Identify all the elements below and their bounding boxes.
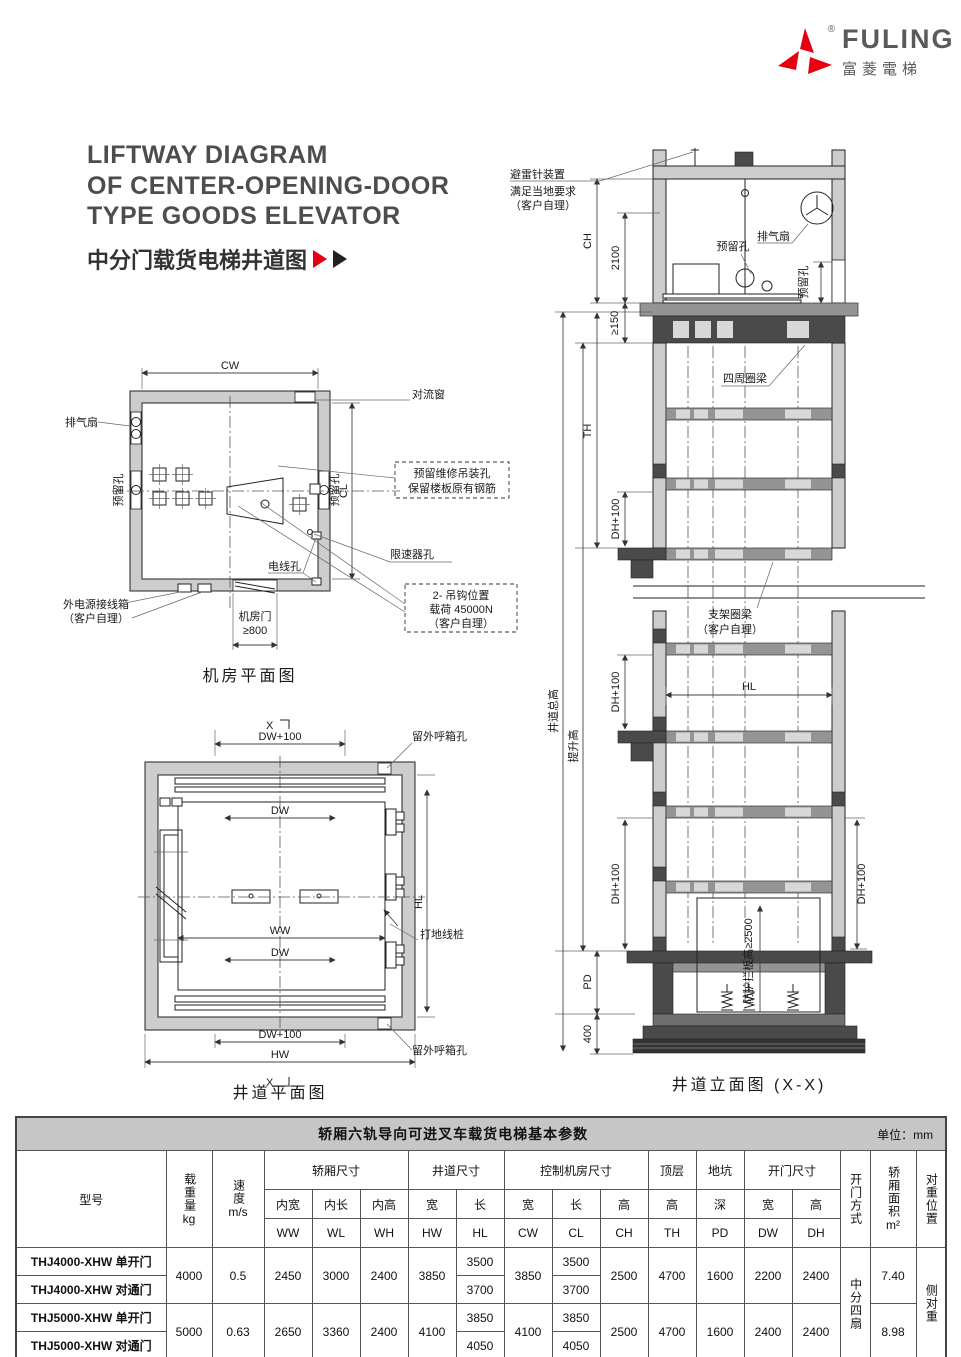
lightning-label3: （客户自理）	[510, 198, 576, 212]
reserved-hole-right-elev-label: 预留孔	[797, 266, 810, 299]
header-dh: DH	[792, 1219, 840, 1248]
header-car-group: 轿厢尺寸	[264, 1151, 408, 1190]
black-arrow-icon	[333, 250, 347, 268]
dim-hl-elev: HL	[742, 681, 756, 693]
page-title: LIFTWAY DIAGRAM OF CENTER-OPENING-DOOR T…	[87, 140, 449, 275]
dim-dw-bottom: DW	[271, 947, 290, 959]
dim-dw-top: DW	[271, 805, 290, 817]
spec-cell: 2400	[360, 1248, 408, 1304]
spec-cell: 5000	[166, 1304, 212, 1357]
dim-2100: 2100	[610, 246, 622, 270]
machine-room-plan-diagram: CW CL 排气扇 预留孔 预留孔 对流窗 预留维修吊装孔 保留楼板原有钢筋 限…	[60, 356, 520, 696]
dim-dh100-b: DH+100	[610, 672, 622, 713]
header-counterweight: 对重位置	[916, 1151, 946, 1248]
header-door-h: 高	[792, 1190, 840, 1219]
spec-cell: 2500	[600, 1304, 648, 1357]
header-door-w: 宽	[744, 1190, 792, 1219]
reserved-hole-left-label: 预留孔	[112, 474, 125, 507]
table-row: THJ4000-XHW 单开门 4000 0.5 2450 3000 2400 …	[16, 1248, 946, 1276]
spec-cell: 2450	[264, 1248, 312, 1304]
lightning-label2: 满足当地要求	[510, 184, 576, 198]
machine-room-door-dim: ≥800	[243, 625, 267, 637]
hook-note2: 载荷 45000N	[429, 603, 493, 616]
spec-cell: 4000	[166, 1248, 212, 1304]
model-cell: THJ4000-XHW 对通门	[16, 1276, 166, 1304]
hoist-hole-note1: 预留维修吊装孔	[414, 466, 491, 480]
total-height-label: 井道总高	[546, 689, 560, 733]
lightning-label1: 避雷针装置	[510, 167, 565, 181]
header-dw: DW	[744, 1219, 792, 1248]
title-en-line1: LIFTWAY DIAGRAM	[87, 140, 449, 171]
spec-cell: 4050	[456, 1332, 504, 1357]
header-top-group: 顶层	[648, 1151, 696, 1190]
shaft-plan-caption: 井道平面图	[232, 1084, 327, 1102]
elevation-structure	[618, 148, 925, 1053]
hook-note3: （客户自理）	[428, 616, 494, 630]
header-door-group: 开门尺寸	[744, 1151, 840, 1190]
dim-400: 400	[582, 1025, 594, 1043]
header-cl: CL	[552, 1219, 600, 1248]
spec-cell: 4100	[504, 1304, 552, 1357]
table-title: 轿厢六轨导向可进叉车载货电梯基本参数	[29, 1124, 877, 1144]
dim-hl: HL	[413, 895, 425, 909]
header-room-l: 长	[552, 1190, 600, 1219]
spec-table: 轿厢六轨导向可进叉车载货电梯基本参数 单位：mm 型号 载重量kg 速度m/s …	[15, 1116, 947, 1357]
header-wl: WL	[312, 1219, 360, 1248]
title-en-line2: OF CENTER-OPENING-DOOR	[87, 171, 449, 202]
power-box-label1: 外电源接线箱	[63, 597, 129, 611]
title-cn: 中分门载货电梯井道图	[87, 243, 307, 275]
ring-beam-label: 四周圈梁	[723, 371, 767, 385]
area-cell: 7.40	[870, 1248, 916, 1304]
brand-mark-icon: ®	[775, 26, 833, 86]
spec-cell: 3360	[312, 1304, 360, 1357]
brand-name: FULING	[842, 26, 955, 53]
header-hl: HL	[456, 1219, 504, 1248]
shaft-elevation-diagram: CH 2100 ≥150 TH DH+100 DH+100 DH+100 提升高…	[505, 146, 955, 1108]
hook-note1: 2- 吊钩位置	[433, 588, 490, 602]
dim-dh100-a: DH+100	[610, 499, 622, 540]
callbox-top-label: 留外呼箱孔	[412, 729, 467, 743]
callbox-bottom-label: 留外呼箱孔	[412, 1043, 467, 1057]
brand-name-cn: 富菱電梯	[842, 58, 955, 79]
spec-cell: 3850	[408, 1248, 456, 1304]
bracket-beam-label2: （客户自理）	[697, 622, 763, 636]
spec-cell: 4700	[648, 1304, 696, 1357]
dim-cw-label: CW	[221, 360, 240, 372]
cw-dimension: CW	[142, 360, 318, 389]
shaft-plan-diagram: X X	[90, 712, 490, 1104]
header-car-l: 内长	[312, 1190, 360, 1219]
model-cell: THJ5000-XHW 对通门	[16, 1332, 166, 1357]
spec-cell: 2500	[600, 1248, 648, 1304]
hoist-hole-note2: 保留楼板原有钢筋	[408, 481, 496, 495]
counterweight-cell: 侧对重	[916, 1248, 946, 1357]
spec-cell: 0.63	[212, 1304, 264, 1357]
area-cell: 8.98	[870, 1304, 916, 1357]
guard-height-label: 防护拦板高≥2500	[741, 918, 755, 1004]
spec-cell: 3700	[456, 1276, 504, 1304]
header-pd: PD	[696, 1219, 744, 1248]
header-pit-d: 深	[696, 1190, 744, 1219]
spec-cell: 2650	[264, 1304, 312, 1357]
model-cell: THJ4000-XHW 单开门	[16, 1248, 166, 1276]
spec-cell: 3850	[552, 1304, 600, 1332]
machine-room-door-label: 机房门	[239, 609, 272, 623]
model-cell: THJ5000-XHW 单开门	[16, 1304, 166, 1332]
spec-cell: 3500	[456, 1248, 504, 1276]
dim-pd: PD	[582, 974, 594, 989]
spec-cell: 2400	[360, 1304, 408, 1357]
header-shaft-group: 井道尺寸	[408, 1151, 504, 1190]
spec-cell: 3850	[504, 1248, 552, 1304]
spec-cell: 4050	[552, 1332, 600, 1357]
dim-ge150: ≥150	[609, 311, 621, 335]
reserved-hole-right-label: 预留孔	[328, 474, 341, 507]
elevation-caption: 井道立面图 (X-X)	[672, 1076, 827, 1094]
spec-cell: 2400	[744, 1304, 792, 1357]
spec-cell: 0.5	[212, 1248, 264, 1304]
bracket-beam-label1: 支架圈梁	[708, 607, 752, 621]
brand-logo: ® FULING 富菱電梯	[775, 26, 955, 86]
header-wh: WH	[360, 1219, 408, 1248]
spec-cell: 3850	[456, 1304, 504, 1332]
dim-th: TH	[582, 424, 594, 439]
spec-cell: 1600	[696, 1248, 744, 1304]
header-ch: CH	[600, 1219, 648, 1248]
power-box-label2: （客户自理）	[63, 611, 129, 625]
spec-cell: 3500	[552, 1248, 600, 1276]
spec-cell: 3700	[552, 1276, 600, 1304]
travel-height-label: 提升高	[566, 730, 580, 763]
spec-cell: 4100	[408, 1304, 456, 1357]
spec-cell: 2400	[792, 1248, 840, 1304]
header-load: 载重量kg	[166, 1151, 212, 1248]
dim-hw: HW	[271, 1049, 290, 1061]
reserved-hole-elev-label: 预留孔	[717, 240, 750, 253]
header-pit-group: 地坑	[696, 1151, 744, 1190]
convection-window-label: 对流窗	[412, 387, 445, 401]
spec-cell: 3000	[312, 1248, 360, 1304]
header-ww: WW	[264, 1219, 312, 1248]
header-shaft-l: 长	[456, 1190, 504, 1219]
header-cw: CW	[504, 1219, 552, 1248]
dim-ww: WW	[270, 925, 291, 937]
exhaust-fan-label: 排气扇	[65, 415, 98, 429]
door-type-cell: 中分四扇	[840, 1248, 870, 1357]
dim-ch: CH	[582, 233, 594, 249]
header-hw: HW	[408, 1219, 456, 1248]
spec-cell: 2200	[744, 1248, 792, 1304]
spec-cell: 1600	[696, 1304, 744, 1357]
title-en-line3: TYPE GOODS ELEVATOR	[87, 201, 449, 232]
header-car-h: 内高	[360, 1190, 408, 1219]
registered-mark: ®	[828, 24, 835, 35]
dim-dw100-bottom: DW+100	[258, 1029, 301, 1041]
spec-cell: 4700	[648, 1248, 696, 1304]
header-th: TH	[648, 1219, 696, 1248]
header-speed: 速度m/s	[212, 1151, 264, 1248]
header-shaft-w: 宽	[408, 1190, 456, 1219]
dim-dw100-top: DW+100	[258, 731, 301, 743]
red-arrow-icon	[313, 250, 327, 268]
table-title-row: 轿厢六轨导向可进叉车载货电梯基本参数 单位：mm	[16, 1117, 946, 1151]
dim-dh100-right: DH+100	[856, 864, 868, 905]
header-top-h: 高	[648, 1190, 696, 1219]
ground-stake-label: 打地线桩	[420, 927, 464, 941]
header-room-w: 宽	[504, 1190, 552, 1219]
machine-room-plan-caption: 机房平面图	[202, 667, 297, 685]
governor-hole-label: 限速器孔	[390, 548, 434, 561]
wire-hole-label: 电线孔	[268, 559, 301, 573]
header-door-type: 开门方式	[840, 1151, 870, 1248]
header-car-w: 内宽	[264, 1190, 312, 1219]
page: ® FULING 富菱電梯 LIFTWAY DIAGRAM OF CENTER-…	[0, 0, 961, 1357]
header-model: 型号	[16, 1151, 166, 1248]
dim-dh100-c: DH+100	[610, 864, 622, 905]
header-room-group: 控制机房尺寸	[504, 1151, 648, 1190]
header-room-h: 高	[600, 1190, 648, 1219]
table-unit: 单位：mm	[877, 1126, 933, 1143]
header-area: 轿厢面积m²	[870, 1151, 916, 1248]
table-row: THJ5000-XHW 单开门 5000 0.63 2650 3360 2400…	[16, 1304, 946, 1332]
spec-cell: 2400	[792, 1304, 840, 1357]
exhaust-fan-elev-label: 排气扇	[757, 229, 790, 243]
